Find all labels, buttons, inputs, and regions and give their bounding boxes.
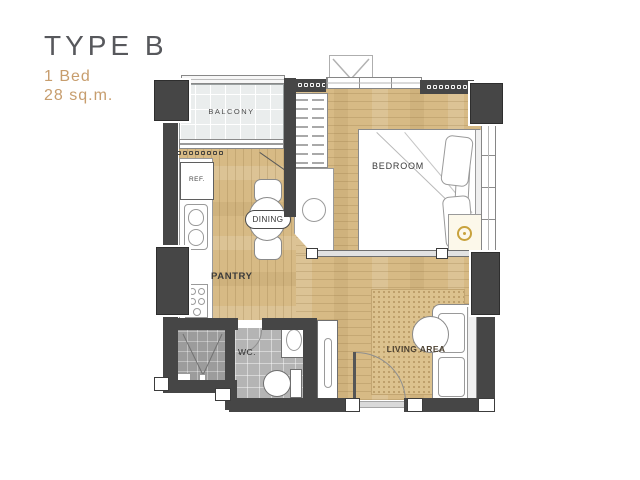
entrance-door-arc xyxy=(356,352,406,402)
balcony-railing xyxy=(181,75,285,84)
unit-area: 28 sq.m. xyxy=(44,87,168,105)
burner xyxy=(198,298,205,305)
pantry-label: PANTRY xyxy=(211,271,253,282)
burner xyxy=(189,298,196,305)
pillar-top-right xyxy=(470,83,503,124)
column-block xyxy=(154,377,169,391)
floor-plan: BALCONY BEDROOM DINING PANTRY WC. LIVING… xyxy=(0,0,640,480)
column-block xyxy=(407,398,423,412)
wardrobe xyxy=(292,93,328,168)
toilet-tank xyxy=(290,369,302,398)
partition-post xyxy=(306,248,318,259)
tv-panel xyxy=(324,338,332,388)
toilet-bowl xyxy=(263,370,291,397)
partition-post xyxy=(436,248,448,259)
entrance-threshold xyxy=(357,401,407,408)
plan-type-title: TYPE B xyxy=(44,30,168,62)
sink-bowl xyxy=(188,209,204,226)
vanity-basin xyxy=(302,198,326,222)
tv-cabinet xyxy=(317,320,338,405)
wardrobe-hangers xyxy=(312,98,324,164)
column-block xyxy=(345,398,360,412)
column-block xyxy=(215,388,231,401)
pillar-mid-left xyxy=(156,247,189,315)
wall-left xyxy=(163,82,178,382)
bedroom-label: BEDROOM xyxy=(372,161,424,171)
balcony-label: BALCONY xyxy=(179,107,284,116)
wall-wc-shower-divider xyxy=(225,330,235,380)
curtain-coil-bedroom xyxy=(297,81,325,90)
column-block xyxy=(478,398,495,412)
wall-wc-top-a xyxy=(163,318,238,330)
curtain-coil-pantry xyxy=(170,149,224,158)
dining-label: DINING xyxy=(245,215,291,224)
wc-label: WC. xyxy=(238,347,256,357)
title-block: TYPE B 1 Bed 28 sq.m. xyxy=(44,30,168,105)
bedroom-window-top xyxy=(326,77,422,89)
curtain-coil-bedroom-right xyxy=(426,83,470,92)
burner xyxy=(193,308,201,316)
kitchen-sink xyxy=(184,204,208,250)
wall-balcony-right xyxy=(284,78,296,217)
living-area-label: LIVING AREA xyxy=(371,344,461,354)
burner xyxy=(198,288,205,295)
refrigerator-label: REF. xyxy=(180,176,214,183)
sink-bowl xyxy=(188,229,204,246)
sofa-cushion xyxy=(438,357,465,397)
wardrobe-hangers xyxy=(296,98,308,164)
bedroom-count: 1 Bed xyxy=(44,68,168,86)
pillar-mid-right xyxy=(471,252,500,315)
ceiling-lamp-icon xyxy=(457,226,472,241)
wall-bottom-a xyxy=(229,398,360,412)
sofa-back xyxy=(467,307,476,403)
burner xyxy=(189,288,196,295)
wall-right-lower xyxy=(477,312,495,412)
balcony-sliding-door xyxy=(179,139,284,149)
bedroom-window-right xyxy=(481,122,496,253)
basin-bowl xyxy=(286,329,302,351)
